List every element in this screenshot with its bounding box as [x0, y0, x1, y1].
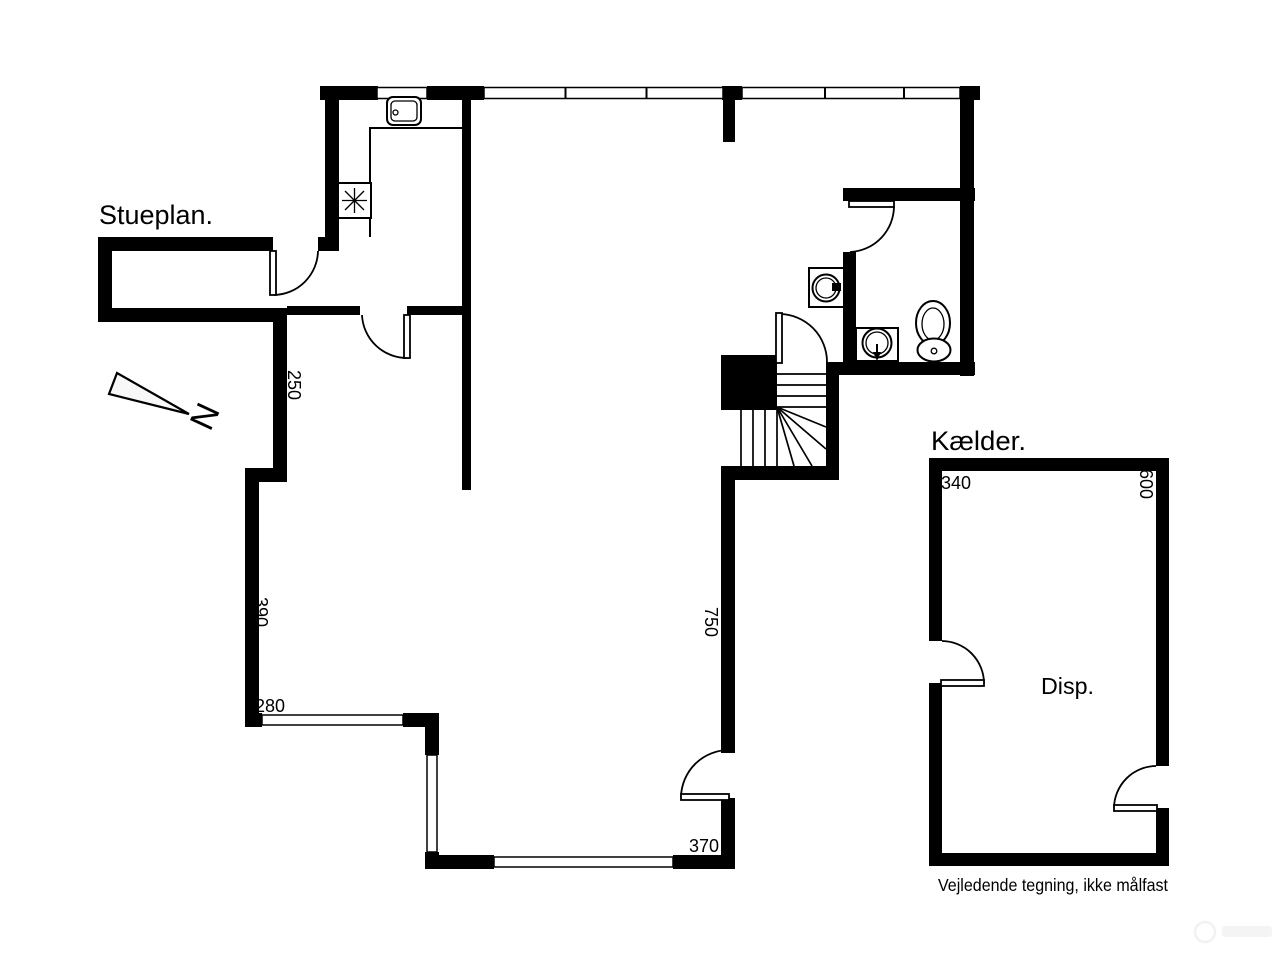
dim-280: 280 [255, 696, 285, 716]
kitchen-sink-icon [387, 97, 421, 125]
dim-250: 250 [284, 370, 304, 400]
window [494, 857, 673, 867]
bathroom-door [849, 201, 894, 252]
toilet-icon [916, 301, 951, 362]
kitchen-counter [370, 128, 462, 237]
window [262, 715, 403, 725]
doors [270, 201, 894, 800]
disclaimer-text: Vejledende tegning, ikke målfast [938, 875, 1168, 895]
north-label: N [182, 397, 227, 435]
floorplan-svg: N Stueplan. Kælder. 250 390 280 750 370 … [0, 0, 1280, 960]
window [742, 88, 960, 99]
entry-door [270, 251, 318, 295]
window [427, 755, 437, 852]
kaelder-title: Kælder. [931, 426, 1026, 456]
basement-right-door [1114, 766, 1157, 811]
stove-icon [338, 183, 371, 218]
living-room-door [681, 750, 729, 800]
basement-room-label: Disp. [1041, 673, 1094, 699]
dim-340: 340 [941, 473, 971, 493]
dim-750: 750 [701, 607, 721, 637]
stair-door [776, 313, 827, 363]
stueplan-title: Stueplan. [99, 200, 213, 230]
dim-370: 370 [689, 836, 719, 856]
basement-left-door [941, 641, 984, 686]
washing-machine-icon [809, 268, 844, 307]
dim-600: 600 [1136, 469, 1156, 499]
floorplan-image: N Stueplan. Kælder. 250 390 280 750 370 … [0, 0, 1280, 960]
room-door [362, 315, 410, 358]
labels: Stueplan. Kælder. 250 390 280 750 370 34… [99, 200, 1168, 895]
kaelder-walls [929, 458, 1169, 866]
bathroom-fixtures [809, 268, 951, 362]
dim-390: 390 [251, 597, 271, 627]
watermark [1195, 922, 1272, 942]
window [484, 88, 723, 99]
washbasin-icon [856, 328, 898, 361]
stueplan-walls [98, 86, 980, 869]
north-arrow-icon: N [109, 373, 226, 435]
kitchen [338, 97, 462, 237]
